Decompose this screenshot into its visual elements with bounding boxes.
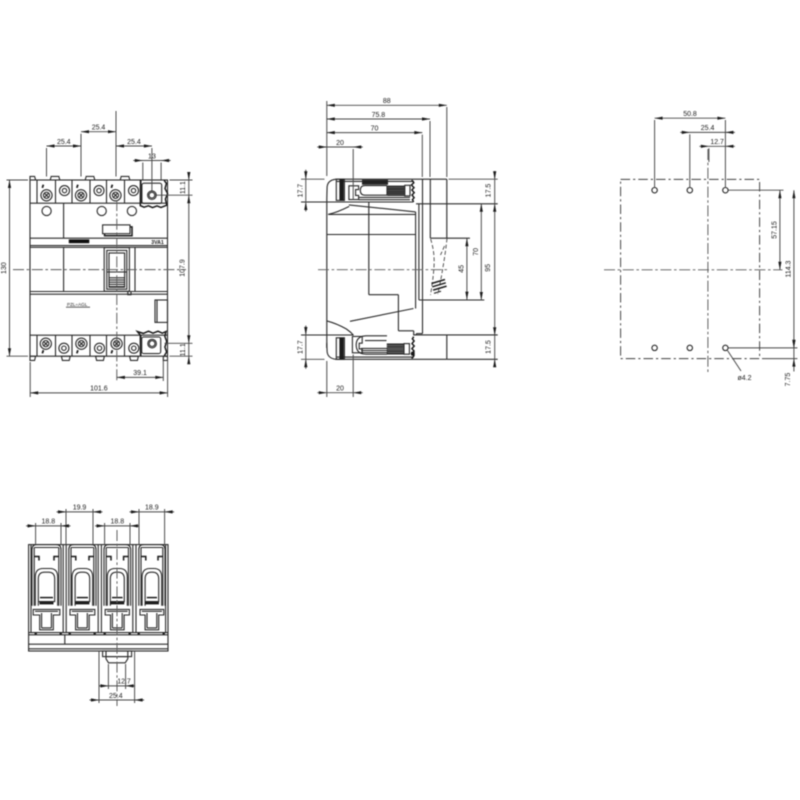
- svg-text:17.5: 17.5: [485, 340, 492, 354]
- svg-text:13: 13: [148, 153, 156, 160]
- svg-text:20: 20: [336, 140, 344, 147]
- svg-text:88: 88: [383, 98, 391, 105]
- svg-text:70: 70: [371, 125, 379, 132]
- svg-text:25.4: 25.4: [57, 139, 71, 146]
- svg-text:ø4.2: ø4.2: [737, 375, 751, 382]
- svg-text:107.9: 107.9: [180, 259, 187, 277]
- svg-text:101.6: 101.6: [90, 386, 108, 393]
- svg-text:114.3: 114.3: [786, 260, 793, 277]
- svg-text:PZL=AGL: PZL=AGL: [67, 302, 88, 307]
- svg-text:95: 95: [485, 264, 492, 272]
- svg-text:19.9: 19.9: [73, 505, 87, 512]
- svg-text:17.7: 17.7: [297, 340, 304, 354]
- svg-text:7.75: 7.75: [785, 373, 792, 387]
- svg-text:57.15: 57.15: [772, 221, 779, 239]
- svg-text:17.7: 17.7: [297, 184, 304, 198]
- svg-text:12.7: 12.7: [710, 139, 724, 146]
- svg-text:25.4: 25.4: [701, 125, 715, 132]
- svg-text:12.7: 12.7: [117, 679, 131, 686]
- svg-text:17.5: 17.5: [485, 184, 492, 198]
- svg-text:20: 20: [336, 386, 344, 393]
- svg-text:70: 70: [473, 248, 480, 256]
- svg-text:18.8: 18.8: [110, 519, 124, 526]
- svg-text:11.1: 11.1: [180, 181, 187, 194]
- svg-text:18.9: 18.9: [145, 505, 159, 512]
- svg-text:11.1: 11.1: [180, 343, 187, 356]
- svg-text:39.1: 39.1: [133, 370, 147, 377]
- svg-text:25.4: 25.4: [127, 139, 141, 146]
- svg-text:3VA1: 3VA1: [151, 240, 164, 246]
- svg-text:18.8: 18.8: [41, 519, 55, 526]
- svg-text:130: 130: [1, 262, 8, 274]
- svg-text:50.8: 50.8: [683, 111, 697, 118]
- svg-text:25.4: 25.4: [109, 693, 123, 700]
- svg-text:45: 45: [459, 265, 466, 273]
- svg-text:75.8: 75.8: [372, 112, 386, 119]
- svg-text:25.4: 25.4: [92, 125, 106, 132]
